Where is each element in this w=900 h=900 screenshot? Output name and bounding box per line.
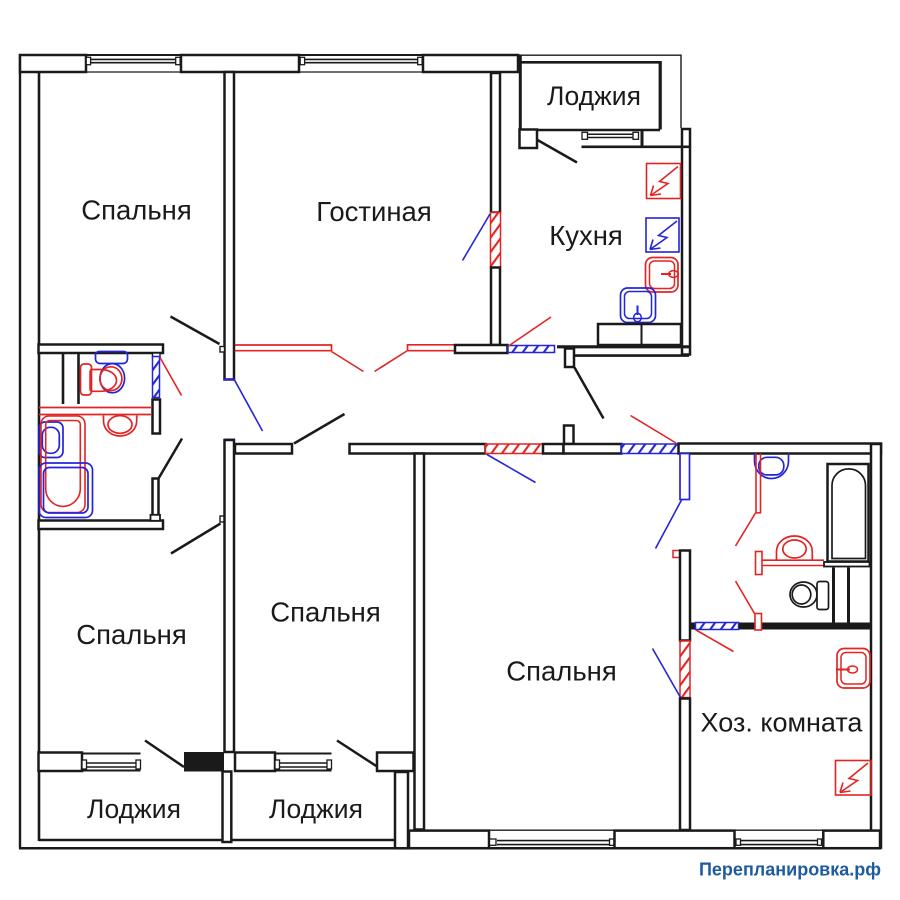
svg-text:Хоз. комната: Хоз. комната <box>701 708 864 738</box>
svg-text:Кухня: Кухня <box>549 220 623 251</box>
svg-text:Спальня: Спальня <box>270 597 381 628</box>
svg-text:Спальня: Спальня <box>81 195 192 226</box>
svg-text:Лоджия: Лоджия <box>87 794 181 824</box>
svg-text:Перепланировка.рф: Перепланировка.рф <box>699 860 881 880</box>
svg-text:Лоджия: Лоджия <box>547 81 641 111</box>
svg-text:Спальня: Спальня <box>76 619 187 650</box>
svg-text:Лоджия: Лоджия <box>269 794 363 824</box>
svg-text:Гостиная: Гостиная <box>316 196 431 227</box>
svg-text:Спальня: Спальня <box>506 656 617 687</box>
